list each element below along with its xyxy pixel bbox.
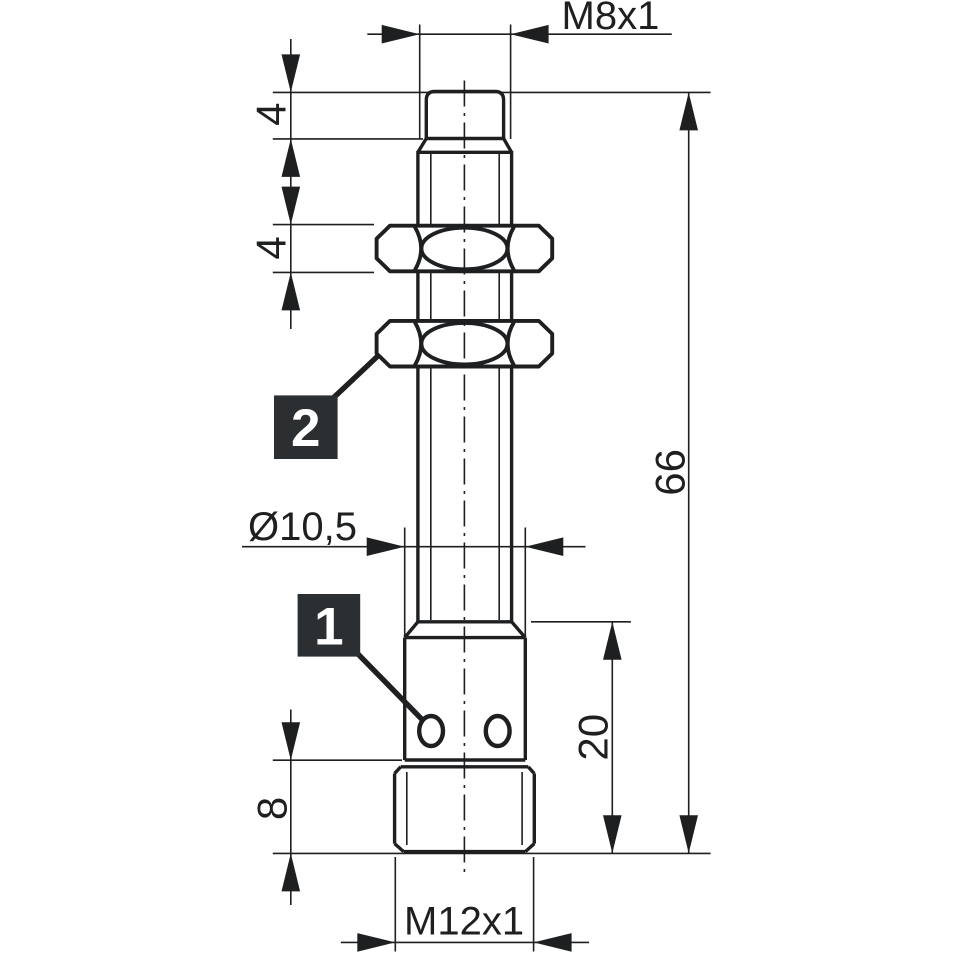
svg-text:Ø10,5: Ø10,5 [248, 505, 357, 549]
svg-text:1: 1 [314, 598, 343, 657]
svg-text:20: 20 [569, 714, 616, 761]
svg-text:M12x1: M12x1 [404, 899, 524, 943]
svg-text:8: 8 [249, 797, 296, 820]
svg-text:2: 2 [291, 399, 320, 458]
svg-text:66: 66 [647, 449, 694, 496]
svg-text:4: 4 [247, 236, 294, 259]
svg-text:4: 4 [247, 103, 294, 126]
svg-text:M8x1: M8x1 [562, 0, 660, 38]
